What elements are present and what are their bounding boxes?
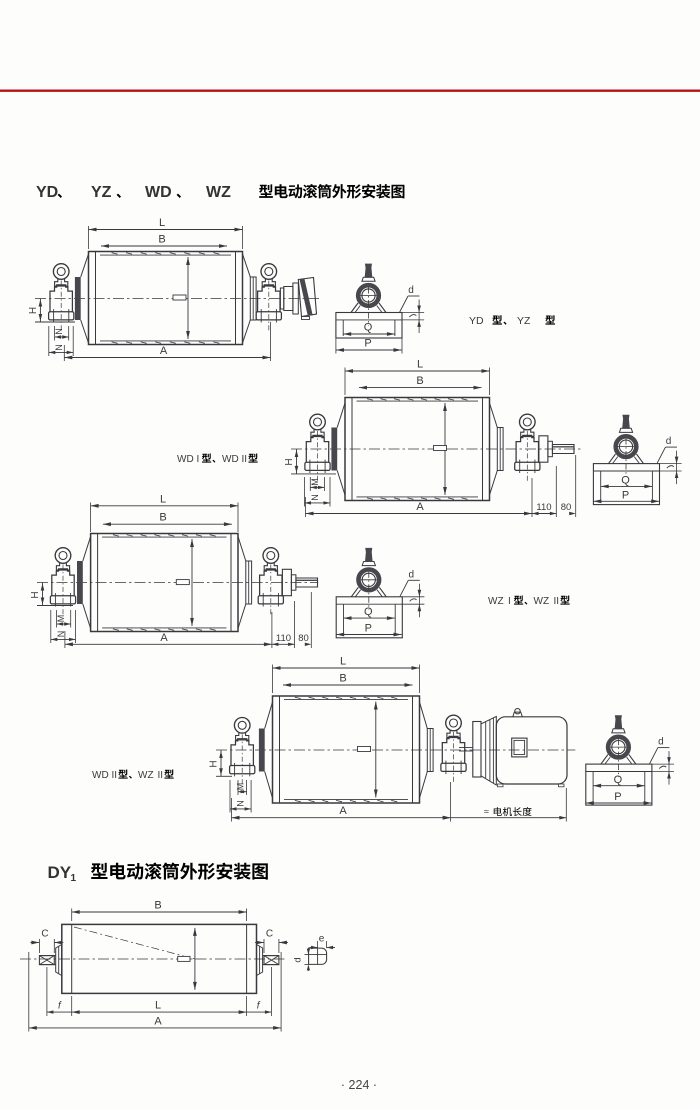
svg-text:A: A	[339, 805, 347, 817]
svg-text:L: L	[159, 217, 165, 229]
svg-text:≈: ≈	[484, 807, 489, 817]
svg-text:II: II	[554, 596, 560, 607]
svg-text:B: B	[154, 900, 161, 912]
svg-text:H: H	[30, 591, 41, 598]
svg-text:d: d	[293, 957, 304, 962]
svg-text:L: L	[417, 359, 423, 371]
svg-text:A: A	[160, 345, 168, 357]
svg-text:M: M	[236, 783, 246, 791]
svg-text:110: 110	[276, 633, 291, 644]
svg-text:I: I	[508, 596, 511, 607]
svg-text:N: N	[54, 328, 64, 335]
svg-text:· 224 ·: · 224 ·	[341, 1078, 377, 1092]
svg-text:L: L	[160, 493, 166, 505]
svg-text:B: B	[416, 375, 423, 387]
svg-text:II: II	[112, 770, 118, 781]
svg-text:C: C	[41, 928, 48, 939]
svg-text:WZ: WZ	[534, 596, 550, 607]
svg-text:WZ: WZ	[206, 184, 231, 201]
svg-text:C: C	[266, 928, 273, 939]
svg-text:WD: WD	[222, 454, 239, 465]
svg-text:110: 110	[536, 502, 551, 513]
svg-text:80: 80	[298, 633, 309, 644]
svg-text:N: N	[54, 344, 64, 351]
svg-text:WZ: WZ	[488, 596, 504, 607]
svg-text:I: I	[197, 454, 200, 465]
svg-text:d: d	[409, 569, 415, 580]
svg-text:L: L	[155, 1000, 161, 1012]
svg-text:II: II	[242, 454, 248, 465]
svg-text:B: B	[159, 512, 166, 524]
svg-text:A: A	[160, 632, 168, 644]
svg-text:YD: YD	[469, 315, 484, 327]
svg-text:A: A	[416, 501, 424, 513]
svg-text:d: d	[658, 737, 664, 748]
svg-text:H: H	[28, 307, 39, 314]
svg-text:Q: Q	[364, 322, 373, 334]
svg-text:WZ: WZ	[138, 770, 154, 781]
svg-text:H: H	[209, 760, 220, 767]
svg-text:YZ: YZ	[517, 315, 531, 327]
svg-text:P: P	[622, 490, 629, 502]
svg-text:H: H	[284, 458, 295, 465]
svg-text:M: M	[310, 478, 320, 486]
svg-text:DY: DY	[48, 863, 72, 882]
svg-text:Q: Q	[614, 774, 623, 786]
svg-text:YZ: YZ	[91, 184, 112, 201]
svg-text:B: B	[339, 673, 346, 685]
svg-text:N: N	[236, 800, 246, 807]
svg-text:d: d	[666, 436, 672, 447]
svg-text:d: d	[408, 285, 414, 296]
svg-text:P: P	[365, 623, 372, 635]
svg-text:P: P	[614, 791, 621, 803]
svg-text:1: 1	[71, 873, 77, 884]
svg-text:L: L	[340, 656, 346, 668]
svg-text:P: P	[364, 338, 371, 350]
svg-text:N: N	[310, 494, 320, 501]
svg-text:YD: YD	[36, 184, 58, 201]
svg-text:e: e	[319, 934, 325, 945]
svg-text:WD: WD	[145, 184, 172, 201]
svg-text:WD: WD	[177, 454, 194, 465]
svg-text:Q: Q	[364, 606, 373, 618]
svg-text:80: 80	[561, 502, 572, 513]
svg-text:M: M	[56, 615, 66, 623]
svg-text:II: II	[158, 770, 164, 781]
svg-text:A: A	[154, 1015, 162, 1027]
svg-text:WD: WD	[92, 770, 109, 781]
svg-text:B: B	[158, 234, 165, 246]
svg-text:Q: Q	[621, 475, 630, 487]
